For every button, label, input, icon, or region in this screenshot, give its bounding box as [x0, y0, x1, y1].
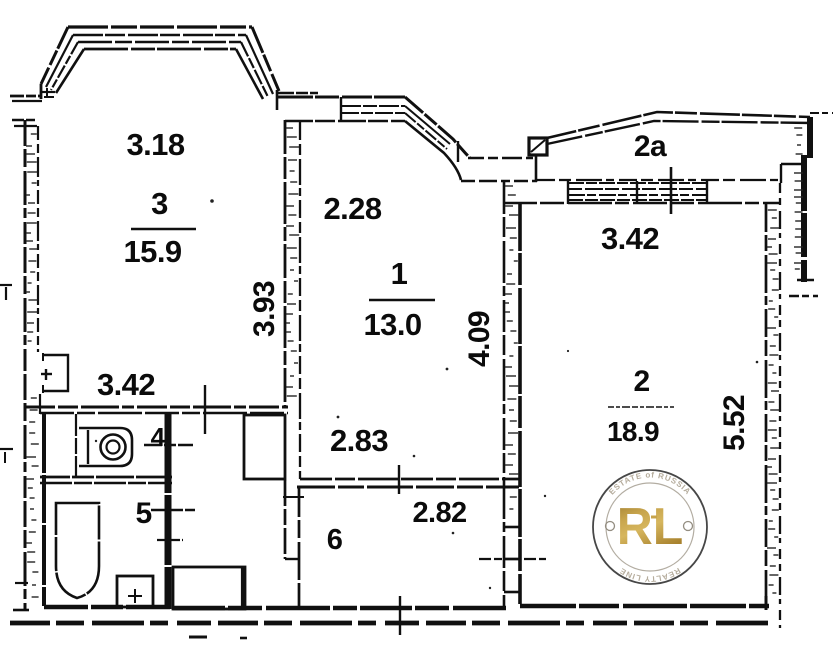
svg-text:3.93: 3.93: [248, 281, 281, 337]
svg-text:2.82: 2.82: [412, 497, 466, 529]
svg-text:2: 2: [633, 365, 649, 398]
svg-text:2.83: 2.83: [330, 423, 388, 458]
svg-text:15.9: 15.9: [124, 234, 182, 269]
svg-text:5.52: 5.52: [718, 395, 751, 451]
svg-text:3.42: 3.42: [601, 221, 659, 256]
svg-text:2a: 2a: [634, 130, 667, 163]
svg-text:13.0: 13.0: [364, 307, 422, 342]
svg-text:4: 4: [151, 422, 166, 452]
svg-text:RL: RL: [617, 497, 684, 555]
svg-text:6: 6: [327, 524, 343, 556]
svg-text:2.28: 2.28: [324, 191, 382, 226]
svg-text:5: 5: [135, 497, 151, 530]
svg-text:4.09: 4.09: [463, 311, 496, 367]
svg-text:3.18: 3.18: [127, 127, 185, 162]
svg-text:3: 3: [151, 186, 168, 221]
svg-text:18.9: 18.9: [607, 416, 659, 447]
svg-text:1: 1: [391, 256, 408, 291]
svg-text:3.42: 3.42: [97, 367, 155, 402]
